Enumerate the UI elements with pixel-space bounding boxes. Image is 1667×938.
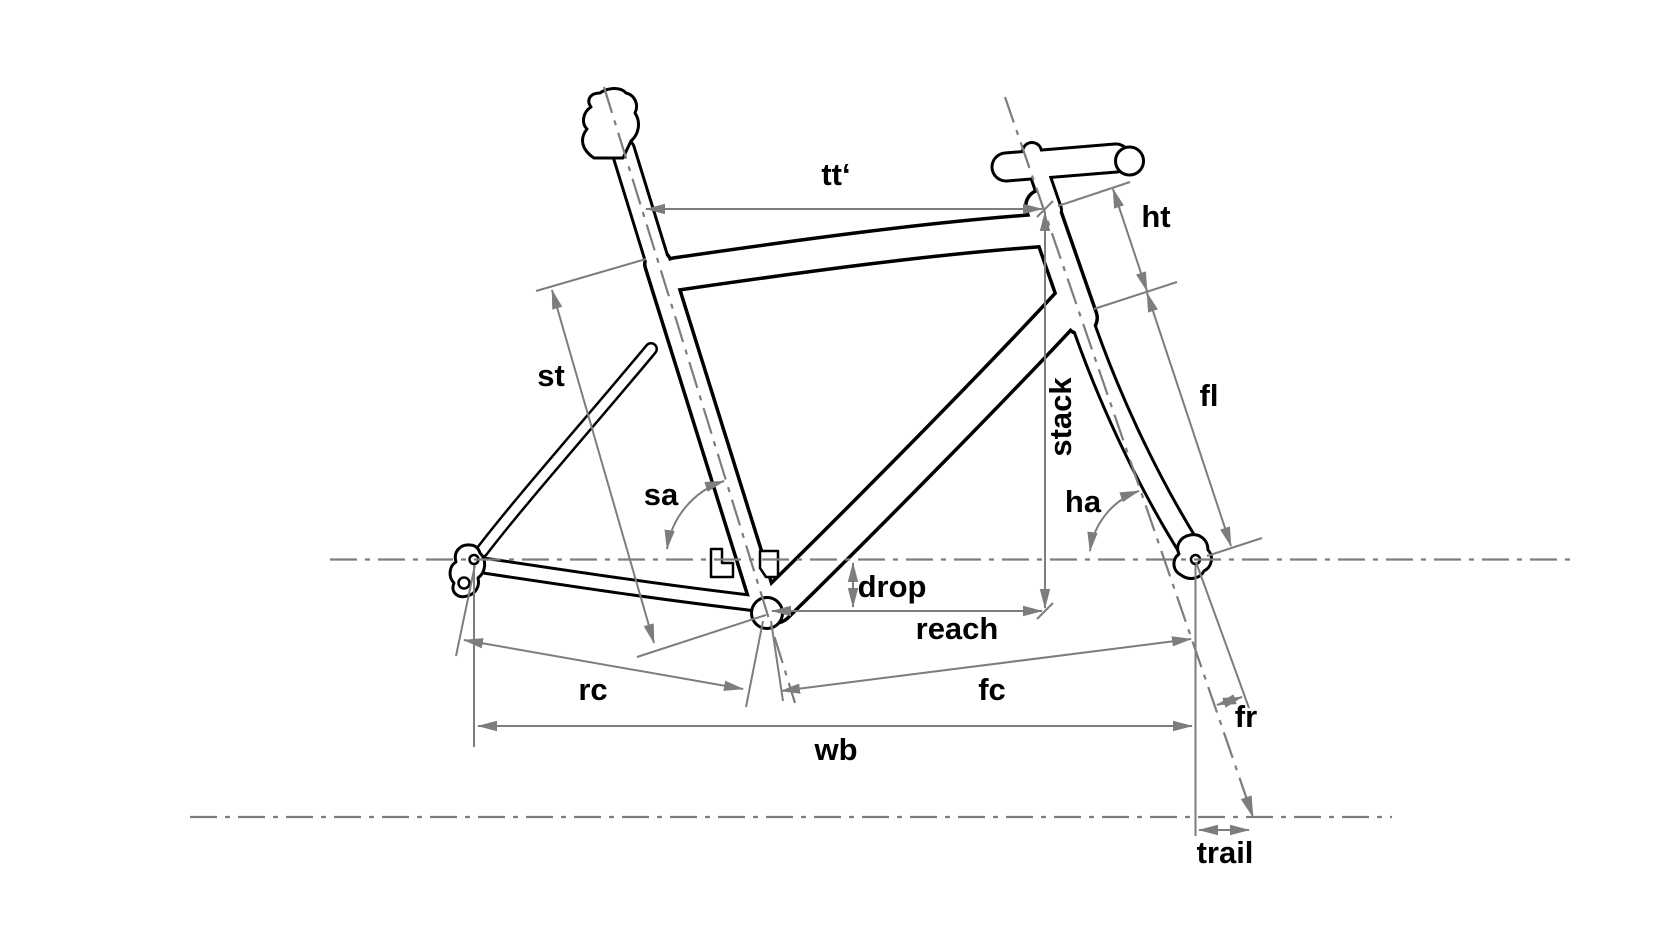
label-stack: stack (1043, 377, 1078, 457)
ht-fl-extension-mid (1094, 282, 1177, 309)
label-ht: ht (1141, 199, 1170, 234)
bike-geometry-diagram: tt‘ ht st fl stack sa ha drop reach rc f… (0, 0, 1667, 938)
label-tt: tt‘ (821, 157, 850, 192)
st-extension-top (536, 259, 646, 291)
rear-dropout (450, 545, 485, 597)
label-reach: reach (916, 611, 999, 646)
label-wb: wb (813, 732, 857, 767)
label-drop: drop (858, 569, 927, 604)
derailleur-mount-detail (711, 549, 733, 577)
label-st: st (537, 358, 565, 393)
label-ha: ha (1065, 484, 1102, 519)
ht-extension-top (1058, 182, 1130, 206)
handlebar-clamp-circle (1116, 147, 1144, 175)
label-fc: fc (978, 672, 1006, 707)
construction-lines (190, 87, 1570, 817)
st-extension-bottom (637, 615, 766, 657)
label-sa: sa (644, 477, 679, 512)
rc-extension-bb (746, 621, 763, 707)
geometry-diagram-page: tt‘ ht st fl stack sa ha drop reach rc f… (0, 0, 1667, 938)
label-trail: trail (1197, 835, 1254, 870)
label-fr: fr (1235, 699, 1257, 734)
derailleur-hanger-hole (459, 578, 470, 589)
label-rc: rc (578, 672, 607, 707)
label-fl: fl (1200, 378, 1219, 413)
chain-catcher-detail (760, 551, 778, 577)
fl-extension-bottom (1207, 538, 1262, 556)
fork-offset-parallel-line (1196, 562, 1249, 708)
